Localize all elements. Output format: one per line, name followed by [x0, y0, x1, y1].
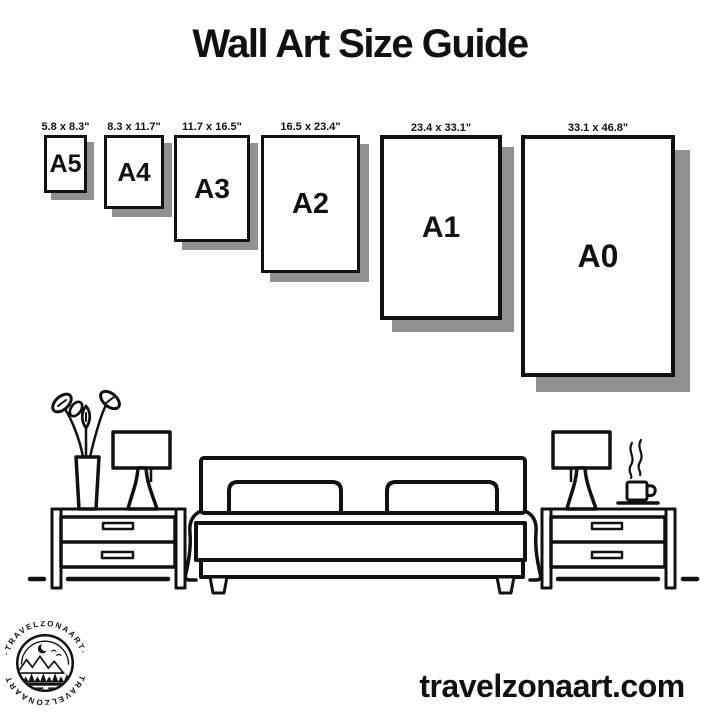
frame-name: A3 [194, 173, 230, 205]
frame-name: A1 [422, 211, 460, 245]
nightstand-icon [52, 509, 185, 588]
frame-dimensions-label: 8.3 x 11.7" [107, 121, 161, 133]
brand-logo-badge: ·TRAVELZONAART· TRAVELZONAART [3, 621, 87, 705]
size-frame-a5: 5.8 x 8.3" A5 [44, 135, 87, 193]
frame-name: A4 [117, 157, 150, 188]
table-lamp-icon [113, 432, 170, 509]
frame-dimensions-label: 16.5 x 23.4" [280, 121, 340, 133]
wall-art-size-guide-poster: Wall Art Size Guide 5.8 x 8.3" A5 8.3 x … [0, 0, 720, 720]
nightstand-icon [542, 509, 675, 588]
page-title: Wall Art Size Guide [0, 22, 720, 67]
coffee-cup-icon [618, 482, 658, 503]
frame-name: A2 [292, 188, 329, 221]
double-bed-icon [185, 458, 540, 593]
frame-dimensions-label: 5.8 x 8.3" [41, 121, 89, 133]
frame-dimensions-label: 23.4 x 33.1" [411, 122, 471, 134]
size-frame-a3: 11.7 x 16.5" A3 [174, 135, 250, 242]
website-url: travelzonaart.com [400, 668, 704, 705]
frame-name: A0 [578, 238, 619, 275]
size-frame-a0: 33.1 x 46.8" A0 [521, 135, 675, 377]
frame-name: A5 [50, 150, 82, 179]
frame-dimensions-label: 33.1 x 46.8" [568, 122, 628, 134]
bedroom-illustration [20, 385, 700, 600]
steam-icon [630, 440, 642, 478]
size-frame-a4: 8.3 x 11.7" A4 [104, 135, 164, 209]
size-frame-a2: 16.5 x 23.4" A2 [261, 135, 360, 273]
table-lamp-icon [553, 432, 610, 509]
size-frame-a1: 23.4 x 33.1" A1 [380, 135, 502, 320]
frame-dimensions-label: 11.7 x 16.5" [182, 121, 242, 133]
